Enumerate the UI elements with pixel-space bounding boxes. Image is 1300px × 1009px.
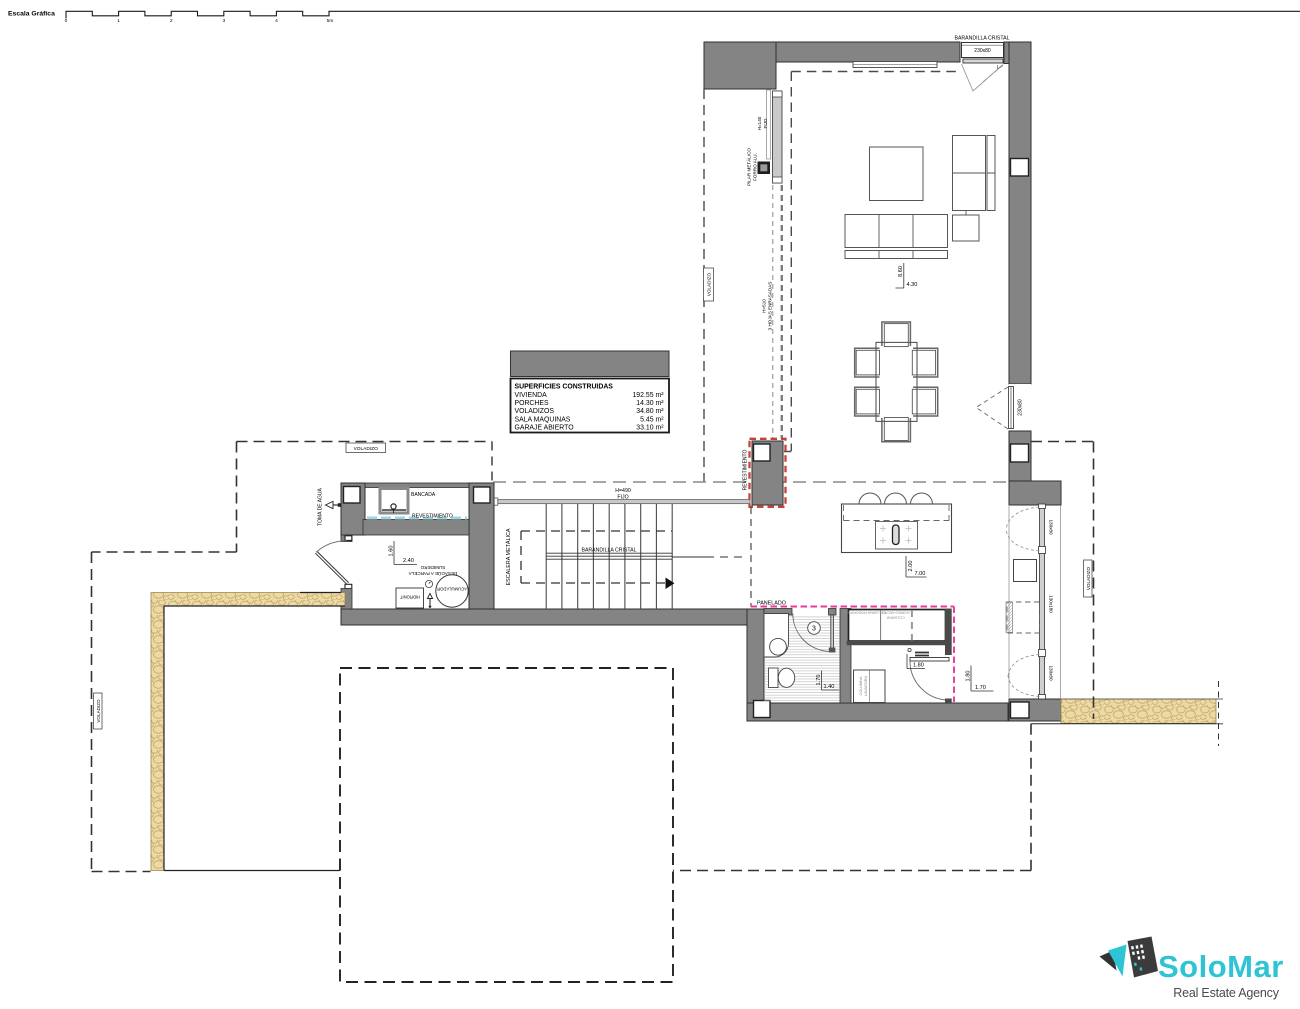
svg-text:1: 1 <box>117 18 120 24</box>
svg-text:1.70: 1.70 <box>975 685 986 691</box>
svg-text:4: 4 <box>275 18 278 24</box>
svg-text:230x80: 230x80 <box>974 48 991 54</box>
svg-text:VOLADIZO: VOLADIZO <box>1086 566 1091 590</box>
svg-text:Real Estate Agency: Real Estate Agency <box>1173 986 1279 1000</box>
svg-text:REVESTIMIENTO: REVESTIMIENTO <box>412 514 453 520</box>
svg-text:VOLADIZO: VOLADIZO <box>96 699 101 723</box>
svg-text:2: 2 <box>170 18 173 24</box>
svg-text:5m: 5m <box>327 18 334 24</box>
svg-text:COLUMNA FRIGORÍFICO: COLUMNA FRIGORÍFICO <box>843 610 886 614</box>
svg-text:COLUMNA: COLUMNA <box>886 615 905 619</box>
svg-text:VIVIENDA: VIVIENDA <box>515 392 548 399</box>
svg-text:SUMIDERO: SUMIDERO <box>420 565 445 570</box>
svg-text:GARAJE ABIERTO: GARAJE ABIERTO <box>515 425 575 432</box>
svg-text:LAVADORA: LAVADORA <box>864 675 868 696</box>
svg-text:2.40: 2.40 <box>403 558 414 564</box>
svg-text:3: 3 <box>222 18 225 24</box>
svg-text:1.80: 1.80 <box>965 671 971 682</box>
svg-text:FORRO ALU.: FORRO ALU. <box>753 153 758 181</box>
svg-text:8.60: 8.60 <box>898 266 904 277</box>
svg-text:3: 3 <box>812 626 816 633</box>
svg-text:0: 0 <box>65 18 68 24</box>
svg-text:PANELADO: PANELADO <box>757 601 786 607</box>
svg-text:2.00: 2.00 <box>908 561 914 572</box>
svg-text:1.40: 1.40 <box>824 684 835 690</box>
svg-text:VOLADIZO: VOLADIZO <box>707 272 712 296</box>
svg-text:FIJO: FIJO <box>763 118 768 128</box>
svg-text:5.45 m²: 5.45 m² <box>640 416 664 423</box>
svg-text:SALA MAQUINAS: SALA MAQUINAS <box>515 416 571 423</box>
svg-text:VOLADIZOS: VOLADIZOS <box>515 408 555 415</box>
svg-text:4.30: 4.30 <box>907 282 918 288</box>
svg-text:33.10 m²: 33.10 m² <box>636 425 664 432</box>
svg-text:HIDRONIT: HIDRONIT <box>399 595 420 600</box>
svg-text:130x80: 130x80 <box>1049 519 1054 535</box>
svg-text:TOMA DE AGUA: TOMA DE AGUA <box>318 487 324 525</box>
svg-text:FIJO: FIJO <box>617 495 628 501</box>
svg-text:Escala Gráfica: Escala Gráfica <box>8 11 55 18</box>
svg-text:PILAR METÁLICO: PILAR METÁLICO <box>746 148 752 186</box>
svg-text:BARANDILLA CRISTAL: BARANDILLA CRISTAL <box>582 548 637 554</box>
svg-text:ACUMULADOR: ACUMULADOR <box>437 587 467 592</box>
svg-text:192.55 m²: 192.55 m² <box>632 392 664 399</box>
svg-text:PORCHES: PORCHES <box>515 400 549 407</box>
svg-text:130x180: 130x180 <box>1049 595 1054 613</box>
svg-text:H=490: H=490 <box>615 488 631 494</box>
svg-text:H=510: H=510 <box>762 299 767 313</box>
svg-text:3 HOJAS ENRASADAS: 3 HOJAS ENRASADAS <box>768 282 773 331</box>
svg-text:COLUMNA: COLUMNA <box>859 676 863 695</box>
svg-text:1.70: 1.70 <box>816 675 822 686</box>
svg-text:230x80: 230x80 <box>1018 399 1024 416</box>
svg-text:14.30 m²: 14.30 m² <box>636 400 664 407</box>
svg-text:7.00: 7.00 <box>915 571 926 577</box>
svg-text:BANCADA: BANCADA <box>411 492 436 498</box>
svg-text:REVESTIMIENTO: REVESTIMIENTO <box>743 450 749 491</box>
svg-text:BARANDILLA CRISTAL: BARANDILLA CRISTAL <box>955 36 1010 42</box>
svg-text:1.80: 1.80 <box>913 663 924 669</box>
svg-text:34.80 m²: 34.80 m² <box>636 408 664 415</box>
svg-text:VOLADIZO: VOLADIZO <box>354 446 379 452</box>
svg-text:HORNO+MICRO: HORNO+MICRO <box>882 610 910 614</box>
svg-text:SUPERFICIES CONSTRUIDAS: SUPERFICIES CONSTRUIDAS <box>515 384 614 391</box>
svg-text:ESCALERA METÁLICA: ESCALERA METÁLICA <box>505 528 512 585</box>
svg-text:1.60: 1.60 <box>388 546 394 557</box>
svg-text:SoloMar: SoloMar <box>1158 949 1284 984</box>
svg-text:H=140: H=140 <box>757 116 762 130</box>
svg-text:130x80: 130x80 <box>1049 665 1054 681</box>
